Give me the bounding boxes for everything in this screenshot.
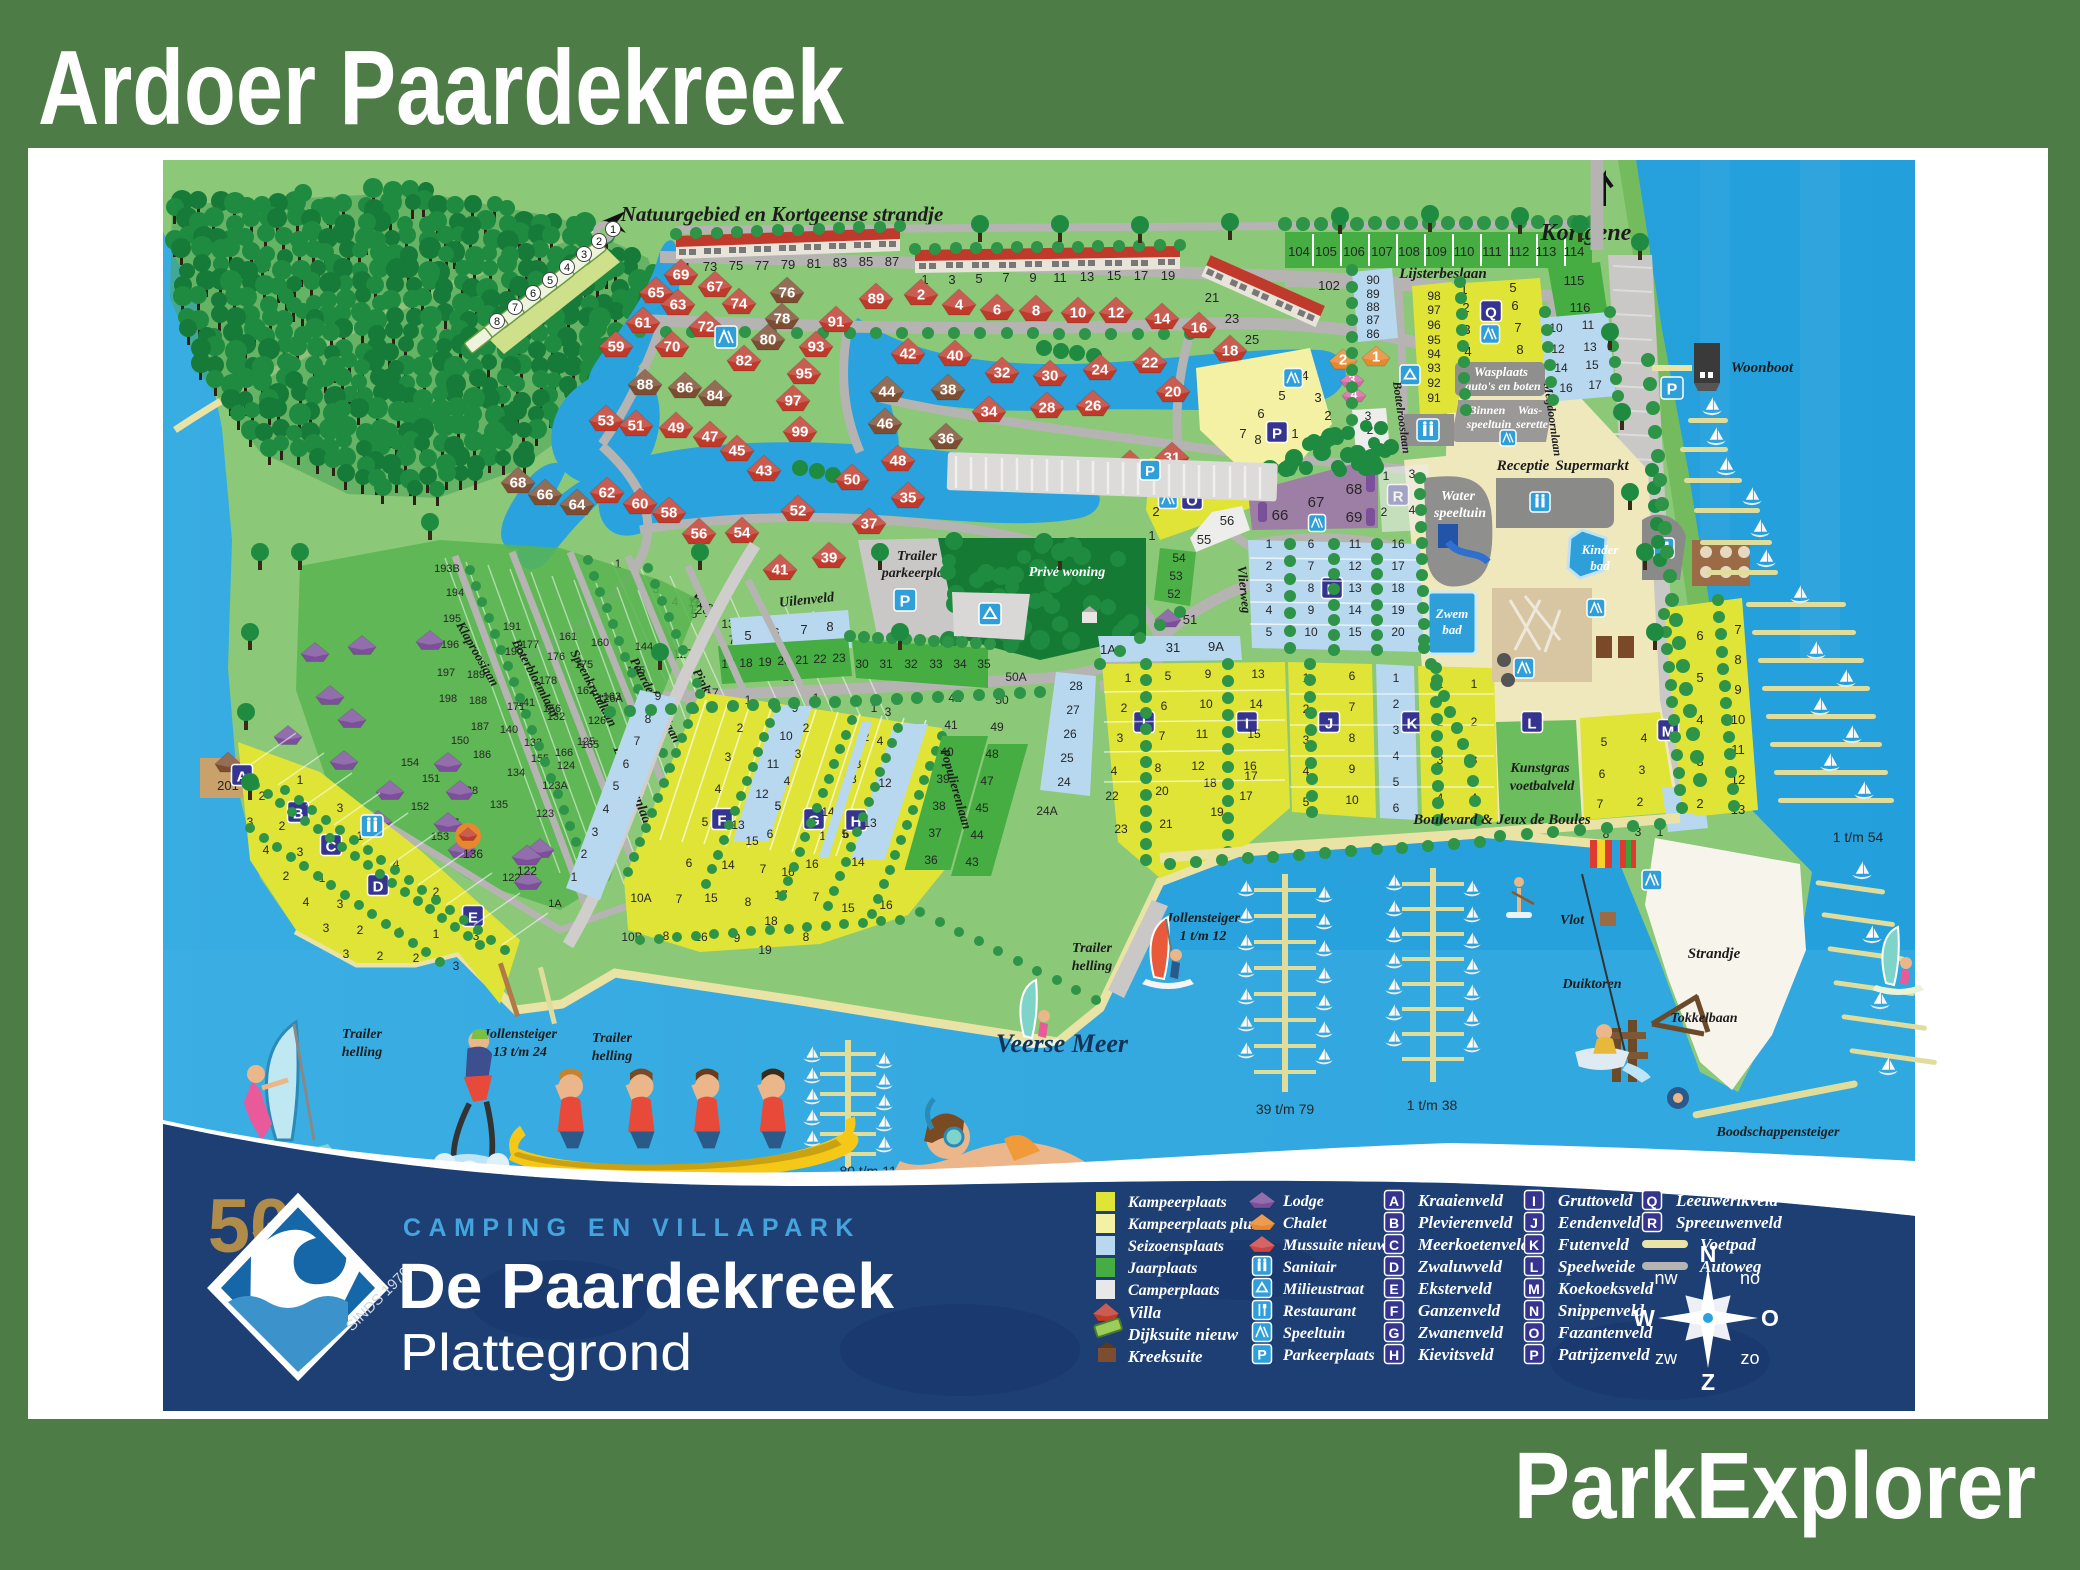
svg-text:2: 2 bbox=[283, 869, 290, 883]
svg-text:7: 7 bbox=[1734, 622, 1741, 637]
svg-text:2: 2 bbox=[279, 819, 286, 833]
svg-text:39: 39 bbox=[936, 772, 950, 786]
svg-text:Sanitair: Sanitair bbox=[1283, 1259, 1337, 1276]
svg-text:38: 38 bbox=[932, 799, 946, 813]
svg-text:108: 108 bbox=[1398, 244, 1420, 259]
svg-text:G: G bbox=[1389, 1325, 1400, 1341]
svg-text:5: 5 bbox=[744, 628, 751, 643]
svg-text:94: 94 bbox=[1427, 347, 1441, 361]
svg-text:54: 54 bbox=[1172, 551, 1186, 565]
svg-text:14: 14 bbox=[1249, 697, 1263, 711]
svg-text:A: A bbox=[1389, 1193, 1399, 1209]
svg-text:107: 107 bbox=[1371, 244, 1393, 259]
svg-text:55: 55 bbox=[1197, 532, 1211, 547]
svg-text:R: R bbox=[1647, 1215, 1657, 1231]
svg-text:66: 66 bbox=[1272, 507, 1289, 524]
svg-text:Kievitsveld: Kievitsveld bbox=[1417, 1345, 1494, 1364]
svg-text:23: 23 bbox=[832, 651, 846, 665]
svg-text:28: 28 bbox=[1039, 399, 1056, 416]
svg-text:helling: helling bbox=[592, 1049, 632, 1064]
svg-text:22: 22 bbox=[1142, 354, 1159, 371]
svg-text:Lodge: Lodge bbox=[1282, 1193, 1324, 1210]
svg-text:31: 31 bbox=[1166, 640, 1180, 655]
svg-text:1 t/m 54: 1 t/m 54 bbox=[1833, 829, 1884, 845]
svg-text:44: 44 bbox=[879, 383, 896, 400]
svg-text:70: 70 bbox=[664, 338, 681, 355]
svg-text:7: 7 bbox=[1239, 426, 1246, 441]
svg-text:3: 3 bbox=[343, 947, 350, 961]
svg-text:60: 60 bbox=[632, 495, 649, 512]
svg-text:2: 2 bbox=[1637, 795, 1644, 809]
svg-text:93: 93 bbox=[808, 338, 825, 355]
svg-text:bad: bad bbox=[1442, 622, 1462, 637]
svg-text:67: 67 bbox=[1308, 494, 1325, 511]
svg-text:Receptie: Receptie bbox=[1496, 458, 1550, 474]
svg-text:52: 52 bbox=[1167, 587, 1181, 601]
svg-text:3: 3 bbox=[948, 272, 955, 287]
svg-text:Boodschappensteiger: Boodschappensteiger bbox=[1716, 1125, 1840, 1140]
svg-text:8: 8 bbox=[745, 895, 752, 909]
svg-text:helling: helling bbox=[1072, 959, 1112, 974]
svg-text:3: 3 bbox=[1314, 390, 1321, 405]
svg-text:82: 82 bbox=[736, 352, 753, 369]
svg-text:Trailer: Trailer bbox=[342, 1027, 382, 1042]
svg-text:3: 3 bbox=[1639, 763, 1646, 777]
svg-text:90: 90 bbox=[1366, 273, 1380, 287]
svg-text:109: 109 bbox=[1425, 244, 1447, 259]
svg-text:19: 19 bbox=[1391, 603, 1405, 617]
svg-text:4: 4 bbox=[263, 843, 270, 857]
svg-text:5: 5 bbox=[1601, 735, 1608, 749]
svg-text:13 t/m 24: 13 t/m 24 bbox=[493, 1045, 547, 1060]
svg-text:Jaarplaats: Jaarplaats bbox=[1127, 1260, 1197, 1277]
svg-text:4: 4 bbox=[1641, 731, 1648, 745]
svg-text:Parkeerplaats: Parkeerplaats bbox=[1282, 1347, 1375, 1364]
svg-text:99: 99 bbox=[792, 423, 809, 440]
svg-text:124: 124 bbox=[557, 760, 575, 772]
svg-text:Binnen: Binnen bbox=[1468, 403, 1506, 417]
svg-text:20: 20 bbox=[1391, 625, 1405, 639]
svg-text:6: 6 bbox=[1393, 801, 1400, 815]
svg-text:15: 15 bbox=[704, 891, 718, 905]
svg-text:5: 5 bbox=[613, 779, 620, 793]
svg-text:61: 61 bbox=[635, 314, 652, 331]
svg-text:Lijsterbeslaan: Lijsterbeslaan bbox=[1398, 266, 1487, 282]
svg-text:9: 9 bbox=[1308, 603, 1315, 617]
svg-text:122: 122 bbox=[517, 864, 537, 878]
svg-text:CAMPING EN VILLAPARK: CAMPING EN VILLAPARK bbox=[403, 1214, 861, 1242]
svg-text:Privé woning: Privé woning bbox=[1029, 565, 1106, 580]
svg-text:2: 2 bbox=[413, 951, 420, 965]
svg-text:3: 3 bbox=[337, 801, 344, 815]
svg-text:194: 194 bbox=[446, 587, 464, 599]
svg-text:Kinder: Kinder bbox=[1581, 542, 1620, 557]
svg-text:P: P bbox=[1667, 382, 1678, 399]
svg-text:35: 35 bbox=[900, 489, 917, 506]
svg-text:N: N bbox=[1700, 1241, 1717, 1267]
svg-text:Natuurgebied en Kortgeense str: Natuurgebied en Kortgeense strandje bbox=[620, 202, 944, 226]
svg-text:11: 11 bbox=[1053, 270, 1067, 285]
svg-text:4: 4 bbox=[1266, 603, 1273, 617]
svg-text:N: N bbox=[1529, 1303, 1539, 1319]
svg-text:6: 6 bbox=[1308, 537, 1315, 551]
svg-text:16: 16 bbox=[1191, 319, 1208, 336]
svg-text:2: 2 bbox=[377, 949, 384, 963]
svg-text:K: K bbox=[1529, 1237, 1539, 1253]
svg-text:4: 4 bbox=[877, 734, 884, 748]
svg-text:Zwem: Zwem bbox=[1435, 606, 1469, 621]
svg-text:6: 6 bbox=[1696, 628, 1703, 643]
svg-text:37: 37 bbox=[861, 515, 878, 532]
svg-text:1: 1 bbox=[1383, 469, 1390, 483]
svg-text:14: 14 bbox=[851, 855, 865, 869]
svg-text:24: 24 bbox=[1092, 361, 1109, 378]
svg-text:O: O bbox=[1761, 1305, 1779, 1331]
svg-text:19: 19 bbox=[758, 655, 772, 669]
svg-text:4: 4 bbox=[784, 774, 791, 788]
svg-text:17: 17 bbox=[1239, 789, 1253, 803]
svg-text:3: 3 bbox=[581, 249, 587, 261]
svg-text:1: 1 bbox=[1393, 671, 1400, 685]
svg-text:Zwanenveld: Zwanenveld bbox=[1417, 1323, 1503, 1342]
svg-text:3: 3 bbox=[795, 747, 802, 761]
svg-text:Jollensteiger: Jollensteiger bbox=[1165, 911, 1240, 926]
svg-text:Kunstgras: Kunstgras bbox=[1509, 761, 1570, 776]
svg-text:L: L bbox=[1530, 1259, 1539, 1275]
svg-text:Q: Q bbox=[1647, 1193, 1658, 1209]
svg-text:Duiktoren: Duiktoren bbox=[1561, 977, 1621, 992]
svg-text:16: 16 bbox=[1391, 537, 1405, 551]
svg-text:2: 2 bbox=[1152, 504, 1159, 519]
svg-text:36: 36 bbox=[938, 430, 955, 447]
svg-text:10: 10 bbox=[1304, 625, 1318, 639]
svg-text:L: L bbox=[1527, 716, 1536, 733]
svg-text:53: 53 bbox=[1169, 569, 1183, 583]
svg-text:65: 65 bbox=[648, 284, 665, 301]
svg-text:7: 7 bbox=[760, 862, 767, 876]
svg-text:153: 153 bbox=[431, 831, 449, 843]
svg-text:7: 7 bbox=[1159, 729, 1166, 743]
svg-text:K: K bbox=[1407, 716, 1418, 733]
svg-text:39 t/m 79: 39 t/m 79 bbox=[1256, 1101, 1315, 1117]
svg-text:Ardoer Paardekreek: Ardoer Paardekreek bbox=[38, 29, 845, 147]
svg-text:14: 14 bbox=[1348, 603, 1362, 617]
svg-text:52: 52 bbox=[790, 502, 807, 519]
svg-text:B: B bbox=[1389, 1215, 1399, 1231]
svg-text:3: 3 bbox=[1117, 731, 1124, 745]
svg-text:115: 115 bbox=[1564, 273, 1585, 288]
svg-text:160: 160 bbox=[591, 637, 609, 649]
svg-text:6: 6 bbox=[1511, 298, 1518, 313]
svg-text:5: 5 bbox=[1266, 625, 1273, 639]
svg-text:M: M bbox=[1528, 1281, 1540, 1297]
svg-text:8: 8 bbox=[1254, 432, 1261, 447]
svg-text:Restaurant: Restaurant bbox=[1282, 1303, 1356, 1320]
svg-text:58: 58 bbox=[661, 504, 678, 521]
svg-text:64: 64 bbox=[569, 496, 586, 513]
svg-text:92: 92 bbox=[1427, 376, 1441, 390]
svg-text:40: 40 bbox=[940, 745, 954, 759]
svg-text:Wasplaats: Wasplaats bbox=[1474, 364, 1528, 379]
svg-text:1A: 1A bbox=[548, 898, 562, 910]
svg-text:195: 195 bbox=[443, 613, 461, 625]
svg-text:Meerkoetenveld: Meerkoetenveld bbox=[1417, 1235, 1530, 1254]
svg-text:6: 6 bbox=[1161, 699, 1168, 713]
svg-text:1: 1 bbox=[433, 927, 440, 941]
svg-text:113: 113 bbox=[1536, 244, 1557, 259]
svg-text:75: 75 bbox=[729, 258, 743, 273]
svg-text:66: 66 bbox=[537, 486, 554, 503]
svg-text:13: 13 bbox=[1583, 340, 1597, 354]
svg-text:12: 12 bbox=[1108, 304, 1125, 321]
svg-text:175: 175 bbox=[575, 659, 593, 671]
svg-text:zw: zw bbox=[1655, 1348, 1678, 1368]
svg-text:104: 104 bbox=[1288, 244, 1310, 259]
svg-text:21: 21 bbox=[795, 653, 809, 667]
svg-text:24: 24 bbox=[1057, 775, 1071, 789]
svg-text:17: 17 bbox=[1391, 559, 1405, 573]
svg-text:8: 8 bbox=[494, 316, 500, 328]
svg-text:6: 6 bbox=[623, 757, 630, 771]
svg-text:7: 7 bbox=[800, 622, 807, 637]
svg-text:22: 22 bbox=[1105, 789, 1119, 803]
svg-text:11: 11 bbox=[1196, 727, 1209, 741]
svg-text:3: 3 bbox=[885, 705, 892, 719]
svg-text:46: 46 bbox=[877, 415, 894, 432]
svg-text:2: 2 bbox=[1471, 715, 1478, 729]
svg-text:15: 15 bbox=[1107, 268, 1121, 283]
svg-text:1A: 1A bbox=[1100, 642, 1116, 657]
svg-text:47: 47 bbox=[702, 428, 719, 445]
svg-text:E: E bbox=[468, 910, 478, 927]
svg-text:87: 87 bbox=[1366, 313, 1380, 327]
svg-text:144: 144 bbox=[635, 641, 653, 653]
svg-text:3: 3 bbox=[1266, 581, 1273, 595]
svg-text:Mussuite nieuw: Mussuite nieuw bbox=[1282, 1237, 1388, 1254]
svg-text:2: 2 bbox=[1339, 352, 1347, 369]
svg-text:15: 15 bbox=[841, 901, 855, 915]
svg-text:189: 189 bbox=[467, 669, 485, 681]
svg-text:4: 4 bbox=[955, 296, 964, 313]
svg-text:4: 4 bbox=[1111, 764, 1118, 778]
svg-text:P: P bbox=[1272, 426, 1282, 443]
svg-text:Jollensteiger: Jollensteiger bbox=[482, 1027, 557, 1042]
svg-text:86: 86 bbox=[677, 379, 694, 396]
svg-text:Milieustraat: Milieustraat bbox=[1282, 1281, 1364, 1298]
svg-text:13: 13 bbox=[1348, 581, 1362, 595]
svg-text:1: 1 bbox=[571, 870, 578, 884]
svg-text:no: no bbox=[1740, 1268, 1760, 1288]
svg-text:105: 105 bbox=[1315, 244, 1337, 259]
svg-text:6: 6 bbox=[1257, 406, 1264, 421]
svg-text:2: 2 bbox=[357, 923, 364, 937]
svg-text:23: 23 bbox=[1225, 311, 1239, 326]
svg-text:Chalet: Chalet bbox=[1283, 1215, 1327, 1232]
svg-text:2: 2 bbox=[917, 286, 925, 303]
svg-text:48: 48 bbox=[890, 452, 907, 469]
svg-text:15: 15 bbox=[745, 834, 759, 848]
svg-text:10A: 10A bbox=[630, 891, 651, 905]
svg-text:77: 77 bbox=[755, 258, 769, 273]
svg-text:6: 6 bbox=[1349, 669, 1356, 683]
svg-text:123: 123 bbox=[536, 808, 554, 820]
svg-text:16: 16 bbox=[805, 857, 819, 871]
svg-text:136: 136 bbox=[463, 847, 483, 861]
svg-text:40: 40 bbox=[947, 347, 964, 364]
svg-text:Plattegrond: Plattegrond bbox=[400, 1324, 692, 1382]
svg-text:97: 97 bbox=[1427, 303, 1441, 317]
svg-text:84: 84 bbox=[707, 387, 724, 404]
svg-text:5: 5 bbox=[1509, 280, 1516, 295]
svg-text:Eksterveld: Eksterveld bbox=[1417, 1279, 1492, 1298]
svg-text:198: 198 bbox=[439, 693, 457, 705]
svg-text:Kampeerplaats plus: Kampeerplaats plus bbox=[1127, 1216, 1258, 1233]
svg-text:31: 31 bbox=[879, 657, 893, 671]
svg-text:18: 18 bbox=[1391, 581, 1405, 595]
svg-text:Seizoensplaats: Seizoensplaats bbox=[1128, 1238, 1224, 1255]
svg-text:E: E bbox=[1389, 1281, 1398, 1297]
svg-text:4: 4 bbox=[564, 262, 570, 274]
svg-text:63: 63 bbox=[670, 296, 687, 313]
svg-text:18: 18 bbox=[739, 656, 753, 670]
svg-text:1: 1 bbox=[610, 224, 616, 236]
svg-text:7: 7 bbox=[1597, 797, 1604, 811]
svg-text:Koekoeksveld: Koekoeksveld bbox=[1557, 1279, 1654, 1298]
svg-text:114: 114 bbox=[1564, 244, 1585, 259]
svg-text:178: 178 bbox=[539, 675, 557, 687]
svg-text:112: 112 bbox=[1509, 244, 1530, 259]
svg-text:3: 3 bbox=[453, 959, 460, 973]
svg-text:J: J bbox=[1325, 716, 1333, 733]
svg-text:Kreeksuite: Kreeksuite bbox=[1127, 1347, 1203, 1366]
svg-text:10: 10 bbox=[779, 729, 793, 743]
svg-text:95: 95 bbox=[796, 365, 813, 382]
svg-text:176: 176 bbox=[547, 651, 565, 663]
svg-text:Speelweide: Speelweide bbox=[1558, 1257, 1636, 1276]
svg-text:7: 7 bbox=[634, 734, 641, 748]
svg-text:Gruttoveld: Gruttoveld bbox=[1558, 1191, 1633, 1210]
svg-text:15: 15 bbox=[1247, 727, 1261, 741]
svg-text:191: 191 bbox=[503, 621, 521, 633]
svg-text:83: 83 bbox=[833, 255, 847, 270]
svg-text:134: 134 bbox=[507, 767, 525, 779]
svg-text:ParkExplorer: ParkExplorer bbox=[1514, 1433, 2036, 1539]
svg-text:126: 126 bbox=[588, 715, 606, 727]
svg-text:126A: 126A bbox=[597, 693, 623, 705]
svg-text:3: 3 bbox=[323, 921, 330, 935]
svg-text:43: 43 bbox=[756, 462, 773, 479]
svg-text:48: 48 bbox=[985, 747, 999, 761]
svg-text:33: 33 bbox=[929, 657, 943, 671]
svg-text:3: 3 bbox=[592, 825, 599, 839]
svg-text:Trailer: Trailer bbox=[897, 549, 937, 564]
svg-text:193B: 193B bbox=[434, 563, 460, 575]
svg-text:Leeuwerikveld: Leeuwerikveld bbox=[1675, 1191, 1778, 1210]
svg-text:4: 4 bbox=[1696, 712, 1703, 727]
svg-text:37: 37 bbox=[928, 826, 942, 840]
svg-text:96: 96 bbox=[1427, 318, 1441, 332]
svg-text:5: 5 bbox=[975, 271, 982, 286]
svg-text:2: 2 bbox=[1696, 796, 1703, 811]
svg-text:22: 22 bbox=[813, 652, 827, 666]
svg-text:7: 7 bbox=[1308, 559, 1315, 573]
svg-text:2: 2 bbox=[1121, 701, 1128, 715]
svg-text:88: 88 bbox=[637, 376, 654, 393]
svg-text:19: 19 bbox=[1210, 805, 1224, 819]
svg-text:Trailer: Trailer bbox=[592, 1031, 632, 1046]
svg-text:79: 79 bbox=[781, 257, 795, 272]
svg-text:Kraaienveld: Kraaienveld bbox=[1417, 1191, 1503, 1210]
svg-text:1: 1 bbox=[297, 773, 304, 787]
svg-text:Woonboot: Woonboot bbox=[1731, 360, 1794, 376]
svg-text:6: 6 bbox=[686, 856, 693, 870]
svg-text:W: W bbox=[1633, 1305, 1655, 1331]
svg-text:6: 6 bbox=[530, 288, 536, 300]
svg-text:J: J bbox=[1530, 1215, 1538, 1231]
svg-text:auto's en boten: auto's en boten bbox=[1465, 379, 1541, 393]
svg-text:21: 21 bbox=[1205, 290, 1219, 305]
svg-text:36: 36 bbox=[924, 853, 938, 867]
svg-text:85: 85 bbox=[859, 254, 873, 269]
svg-text:2: 2 bbox=[1393, 697, 1400, 711]
svg-text:49: 49 bbox=[668, 419, 685, 436]
svg-text:187: 187 bbox=[471, 721, 489, 733]
svg-text:9: 9 bbox=[1029, 270, 1036, 285]
svg-text:8: 8 bbox=[1155, 761, 1162, 775]
svg-text:25: 25 bbox=[1245, 332, 1259, 347]
svg-text:50: 50 bbox=[844, 471, 861, 488]
svg-text:88: 88 bbox=[1366, 300, 1380, 314]
svg-text:5: 5 bbox=[1165, 669, 1172, 683]
svg-text:26: 26 bbox=[1085, 397, 1102, 414]
svg-text:47: 47 bbox=[980, 774, 994, 788]
svg-text:5: 5 bbox=[775, 799, 782, 813]
svg-text:Tokkelbaan: Tokkelbaan bbox=[1670, 1011, 1737, 1026]
svg-text:152: 152 bbox=[411, 801, 429, 813]
svg-text:7: 7 bbox=[813, 890, 820, 904]
svg-text:20: 20 bbox=[1155, 784, 1169, 798]
svg-text:5: 5 bbox=[1696, 670, 1703, 685]
svg-text:1 t/m 12: 1 t/m 12 bbox=[1180, 929, 1227, 944]
svg-text:1: 1 bbox=[1266, 537, 1273, 551]
svg-text:P: P bbox=[1145, 463, 1155, 480]
svg-text:87: 87 bbox=[885, 254, 899, 269]
svg-text:56: 56 bbox=[1220, 513, 1234, 528]
svg-text:Patrijzenveld: Patrijzenveld bbox=[1557, 1345, 1650, 1364]
svg-text:30: 30 bbox=[1042, 367, 1059, 384]
svg-text:P: P bbox=[1529, 1347, 1538, 1363]
svg-text:zo: zo bbox=[1740, 1348, 1759, 1368]
svg-text:188: 188 bbox=[469, 695, 487, 707]
svg-text:150: 150 bbox=[451, 735, 469, 747]
svg-text:4: 4 bbox=[1409, 503, 1416, 517]
svg-text:14: 14 bbox=[1154, 310, 1171, 327]
svg-text:21: 21 bbox=[1159, 817, 1173, 831]
svg-text:5: 5 bbox=[1278, 388, 1285, 403]
svg-text:51: 51 bbox=[628, 417, 645, 434]
svg-text:9: 9 bbox=[1734, 682, 1741, 697]
svg-text:89: 89 bbox=[868, 290, 885, 307]
svg-text:28: 28 bbox=[1069, 679, 1083, 693]
svg-text:86: 86 bbox=[1366, 327, 1380, 341]
svg-text:5: 5 bbox=[842, 827, 849, 841]
svg-text:78: 78 bbox=[774, 310, 791, 327]
svg-text:2: 2 bbox=[1381, 505, 1388, 519]
svg-text:132: 132 bbox=[547, 711, 565, 723]
svg-text:106: 106 bbox=[1343, 244, 1365, 259]
svg-text:32: 32 bbox=[994, 364, 1011, 381]
svg-text:3: 3 bbox=[725, 750, 732, 764]
